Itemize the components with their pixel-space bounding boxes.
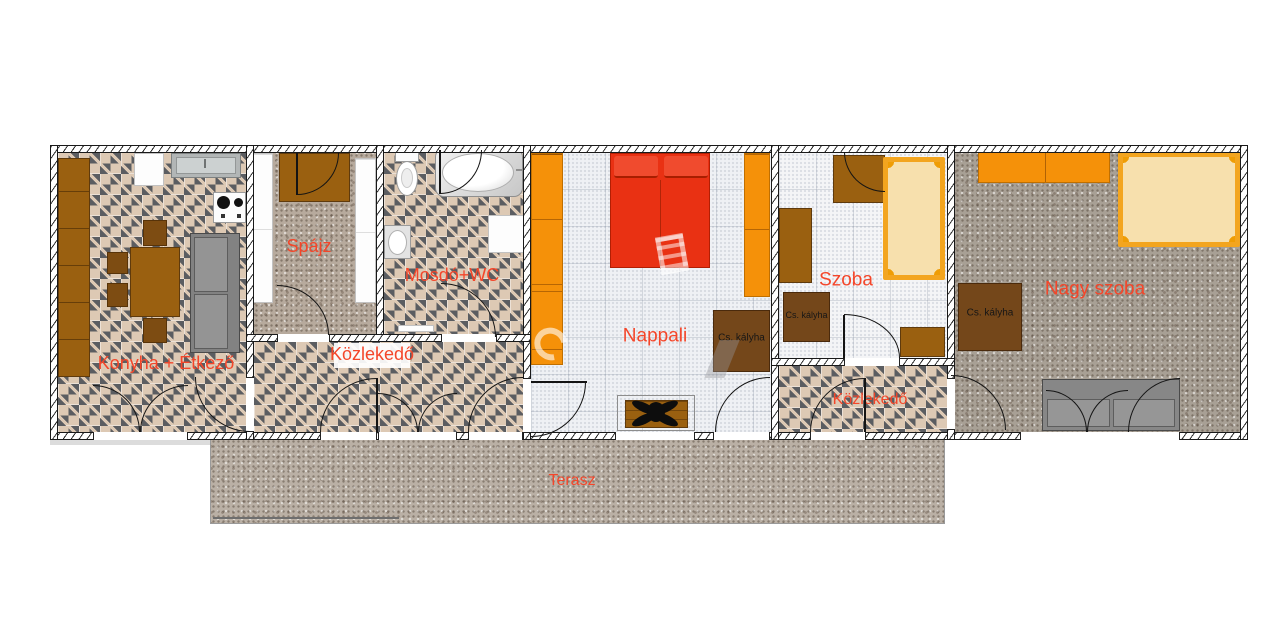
kitchen-sofa (190, 233, 240, 353)
hallway-1-label: Közlekedő (330, 345, 414, 365)
dining-table (130, 247, 180, 317)
kitchen-label: Konyha + Étkező (98, 354, 235, 374)
bed-pillow-right (664, 156, 708, 178)
living-chair (647, 402, 665, 422)
toilet-bowl-inner (401, 168, 413, 188)
door-opening-living-right (713, 432, 770, 440)
wall-living-szoba (771, 145, 779, 440)
bath-mat (398, 325, 434, 332)
bed-center-line (660, 180, 661, 269)
sink-basin (176, 157, 236, 174)
toilet-bowl (396, 161, 418, 196)
dining-chair-left-2 (107, 283, 128, 307)
kitchen-cabinet (134, 153, 164, 186)
room-terrace: Terasz (210, 438, 945, 524)
szoba-bed (883, 157, 945, 280)
washbasin-bowl (388, 230, 407, 255)
sofa-cushion-1 (194, 237, 228, 292)
wall-shadow (50, 440, 210, 445)
szoba-label: Szoba (819, 271, 873, 292)
living-label: Nappali (623, 327, 687, 348)
door-leaf-pantry-cabinet (296, 153, 298, 195)
living-double-bed (610, 153, 710, 268)
wall-pantry-bath (376, 145, 384, 342)
burner-small (234, 198, 243, 207)
large-cabinet (978, 152, 1110, 183)
door-opening-hallway1-b (378, 432, 457, 440)
pantry-label: Spájz (286, 237, 331, 257)
bathtub-tap (516, 169, 522, 171)
wall-right (1240, 145, 1248, 440)
dining-chair-left-1 (107, 252, 128, 274)
door-opening-hallway1-c (468, 432, 523, 440)
burner-knob-1 (221, 214, 225, 218)
door-leaf-szoba (843, 315, 845, 358)
burner-large (217, 196, 230, 209)
szoba-cabinet-left (779, 208, 812, 283)
sink-faucet (204, 159, 206, 168)
dining-chair-top (143, 220, 167, 246)
door-leaf-bath-shower (439, 150, 441, 194)
large-bed (1118, 152, 1240, 247)
living-stove-label: Cs. kályha (718, 333, 765, 344)
terrace-label: Terasz (548, 472, 595, 490)
burner-knob-2 (237, 214, 241, 218)
living-wardrobe-left (531, 153, 563, 365)
door-opening-hallway1-living (523, 378, 531, 433)
floor-plan: Terasz Konyha + Étkező S (0, 0, 1280, 633)
washing-machine (488, 215, 525, 253)
kitchen-counter (58, 158, 90, 377)
door-leaf-hallway1-living (531, 381, 587, 383)
szoba-stove-label: Cs. kályha (785, 310, 827, 320)
room-large: Cs. kályha Nagy szoba (955, 153, 1240, 432)
sofa-cushion-2 (194, 294, 228, 349)
door-opening-hallway2-terrace (810, 432, 866, 440)
kitchen-cooktop (213, 192, 246, 223)
living-wardrobe-right (744, 153, 770, 297)
dining-chair-bottom (143, 318, 167, 343)
pantry-shelf-right (355, 158, 376, 303)
door-opening-szoba (844, 358, 900, 366)
wall-left (50, 145, 58, 440)
kitchen-sink (171, 153, 241, 178)
large-tile-stove: Cs. kályha (958, 283, 1022, 351)
door-opening-large-terrace (1020, 432, 1180, 440)
washbasin (384, 225, 411, 259)
szoba-table (900, 327, 945, 357)
living-tile-stove: Cs. kályha (713, 310, 770, 372)
door-opening-pantry (277, 334, 330, 342)
door-opening-kitchen-terrace (93, 432, 188, 440)
door-leaf-hallway2 (864, 378, 866, 432)
szoba-tile-stove: Cs. kályha (783, 292, 830, 342)
door-opening-hallway1-a (320, 432, 377, 440)
door-opening-living-center (615, 432, 695, 440)
large-label: Nagy szoba (1045, 280, 1145, 301)
bathroom-label: Mosdó+WC (405, 266, 500, 286)
bed-pillow-left (614, 156, 658, 178)
wall-top (50, 145, 1248, 153)
large-stove-label: Cs. kályha (967, 308, 1014, 319)
terrace-step-line (213, 517, 399, 519)
